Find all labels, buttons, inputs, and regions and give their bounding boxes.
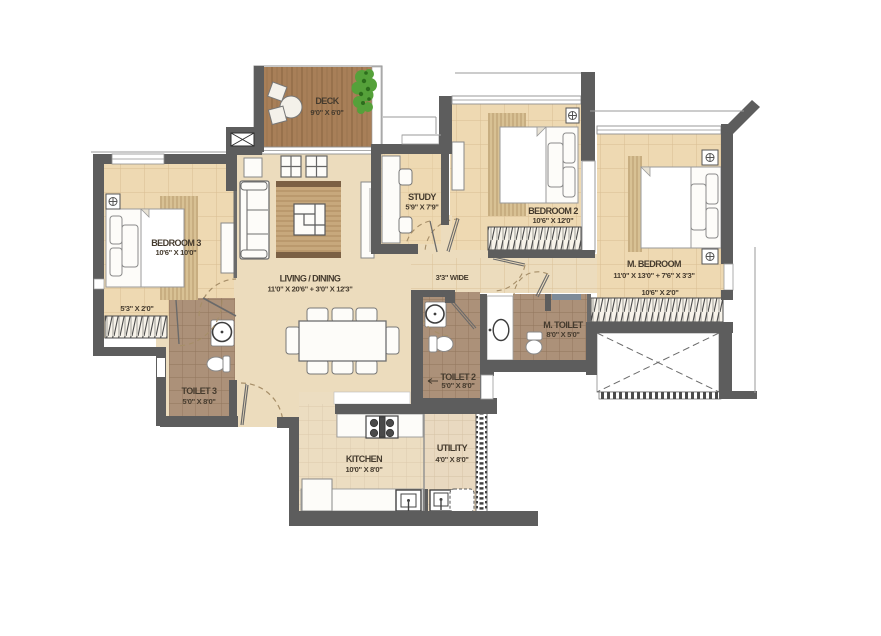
- svg-text:8'0" X 5'0": 8'0" X 5'0": [546, 330, 580, 339]
- svg-text:5'0" X 8'0": 5'0" X 8'0": [182, 397, 216, 406]
- svg-text:5'3" X 2'0": 5'3" X 2'0": [120, 304, 154, 313]
- svg-text:STUDY: STUDY: [408, 192, 436, 202]
- svg-text:10'0" X 8'0": 10'0" X 8'0": [345, 465, 383, 474]
- svg-text:10'6" X 10'0": 10'6" X 10'0": [156, 248, 198, 257]
- svg-text:LIVING / DINING: LIVING / DINING: [280, 274, 341, 284]
- svg-text:TOILET 3: TOILET 3: [182, 386, 217, 396]
- svg-text:UTILITY: UTILITY: [437, 443, 468, 453]
- svg-text:BEDROOM 3: BEDROOM 3: [151, 238, 201, 248]
- svg-text:10'6" X 12'0": 10'6" X 12'0": [533, 216, 575, 225]
- svg-text:M. BEDROOM: M. BEDROOM: [627, 259, 681, 269]
- svg-text:3'3" WIDE: 3'3" WIDE: [436, 273, 469, 282]
- svg-text:4'0" X 8'0": 4'0" X 8'0": [435, 455, 469, 464]
- svg-text:5'0" X 8'0": 5'0" X 8'0": [441, 381, 475, 390]
- svg-text:M. TOILET: M. TOILET: [543, 320, 583, 330]
- svg-text:DECK: DECK: [315, 96, 339, 106]
- svg-text:10'6" X 2'0": 10'6" X 2'0": [641, 288, 679, 297]
- svg-text:11'0" X 20'6" + 3'0" X 12'3": 11'0" X 20'6" + 3'0" X 12'3": [267, 285, 353, 294]
- svg-text:BEDROOM 2: BEDROOM 2: [528, 206, 578, 216]
- svg-text:5'9" X 7'9": 5'9" X 7'9": [405, 203, 439, 212]
- svg-text:11'0" X 13'0" + 7'6" X 3'3": 11'0" X 13'0" + 7'6" X 3'3": [613, 271, 695, 280]
- svg-text:9'0" X 6'0": 9'0" X 6'0": [310, 108, 344, 117]
- svg-text:KITCHEN: KITCHEN: [346, 454, 382, 464]
